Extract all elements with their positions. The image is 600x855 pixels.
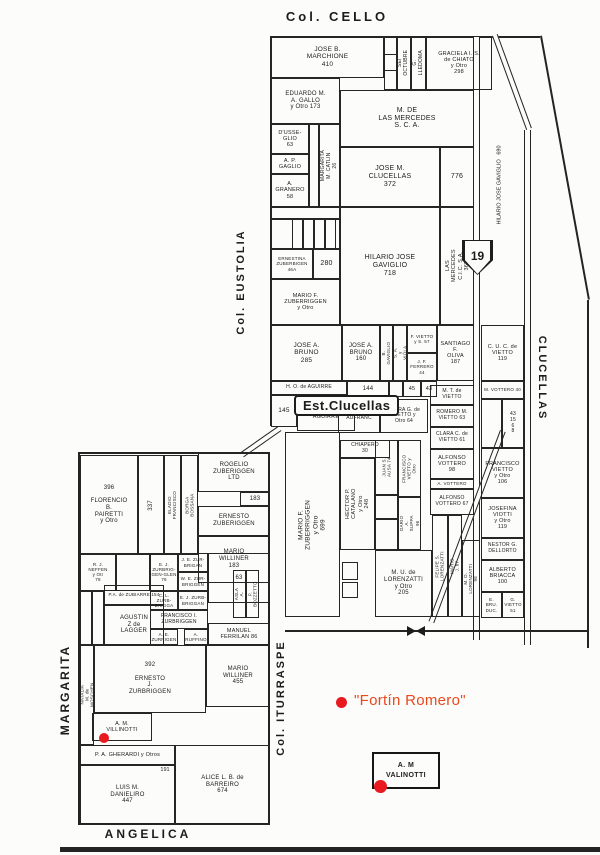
parcel-juan-ausa: JUAN S. AUSA 74 bbox=[375, 440, 398, 495]
bottom-map-edge bbox=[60, 847, 600, 852]
parcel-bottom-strip bbox=[271, 207, 340, 219]
parcel-marchione: JOSE B. MARCHIONE 410 bbox=[271, 36, 384, 78]
right-boundary-diagonal bbox=[540, 36, 589, 300]
parcel-lledoma: G. LLEDOMA bbox=[411, 36, 426, 90]
parcel-lledoma-text: G. LLEDOMA bbox=[413, 50, 425, 75]
parcel-mario-f-zuberriggen: MARIO F. ZUBERRIGGEN y Otro bbox=[271, 279, 340, 325]
south-boundary-line bbox=[285, 630, 588, 632]
strip-seg-line-1 bbox=[384, 54, 397, 55]
colony-label-clucellas: CLUCELLAS bbox=[532, 332, 548, 424]
parcel-we-zurbriggen: W. E. ZUR- BRIGGEN bbox=[178, 572, 208, 591]
parcel-b-gaviglio: B. GAVIGLIO bbox=[380, 325, 393, 381]
parcel-45: 45 bbox=[403, 381, 421, 397]
parcel-luis-danieliro: LUIS M. DANIELIRO 447 bbox=[80, 765, 175, 825]
parcel-ernesto-zuberiggen: ERNESTO ZUBERIGGEN bbox=[198, 506, 270, 536]
parcel-catalano: HECTOR P. CATALANO y Otro 248 bbox=[340, 458, 375, 550]
parcel-clara-c-vietto: CLARA C. de VIETTO 61 bbox=[430, 427, 474, 449]
parcel-zuberriggen-699: MARIO F. ZUBERRIGGEN y Otro 699 bbox=[285, 432, 340, 617]
micro-strip-4 bbox=[325, 219, 336, 249]
parcel-ernesto-392: 392 ERNESTO J. ZURBRIGGEN bbox=[94, 645, 206, 713]
strip-seg-line-2 bbox=[384, 70, 397, 71]
parcel-francisco-zurbriggen: FRANCISCO I. ZURBRIGGEN bbox=[150, 610, 208, 629]
parcel-alfonso-vottero-67: ALFONSO VOTTERO 67 bbox=[430, 489, 474, 515]
parcel-small-1 bbox=[342, 562, 358, 580]
parcel-oliva: SANTIAGO F. OLIVA 187 bbox=[437, 325, 474, 381]
parcel-bruno-160: JOSE A. BRUNO 160 bbox=[342, 325, 380, 381]
parcel-sa-viola: S. A. y VIOLA bbox=[393, 325, 407, 381]
parcel-lorenzatti-96-text: M. D. LORENZATTI 96 bbox=[463, 564, 479, 594]
parcel-thin-strip bbox=[309, 124, 319, 207]
parcel-usseglio: D'USSE- GLIO 63 bbox=[271, 124, 309, 154]
parcel-catalano-text: HECTOR P. CATALANO y Otro 248 bbox=[345, 488, 370, 521]
east-road bbox=[524, 130, 531, 645]
parcel-lorenzatti-96: M. D. LORENZATTI 96 bbox=[462, 540, 480, 617]
crossing-marker-icon bbox=[407, 626, 416, 636]
parcel-west-strip-2 bbox=[92, 591, 104, 645]
parcel-alberto-briacca: ALBERTO BRIACCA 100 bbox=[481, 560, 524, 592]
parcel-catlin: MARGARITA M. CATLIN 26 bbox=[319, 124, 340, 207]
parcel-337: 337 bbox=[138, 455, 164, 555]
parcel-zuberriggen-699-text: MARIO F. ZUBERRIGGEN y Otro 699 bbox=[298, 498, 328, 551]
parcel-a-vottero-strip: A. VOTTERO bbox=[430, 479, 474, 489]
parcel-mid-strip bbox=[375, 519, 398, 550]
parcel-gherardi: P. A. GHERARDI y Otros bbox=[80, 745, 175, 765]
parcel-dario-suppa-text: DARIO A. SUPPA 96 bbox=[399, 513, 420, 534]
label-hilario-gaviglio-690: HILARIO JOSE GAVIGLIO 690 bbox=[488, 120, 512, 250]
parcel-granero: A. GRANERO 58 bbox=[271, 174, 309, 207]
parcel-bozzetto: P. BOZZETTO bbox=[246, 570, 259, 618]
parcel-borga-bossana-text: BORGA BOSSANA bbox=[184, 493, 194, 516]
parcel-las-mercedes-sca: M. DE LAS MERCEDES S. C. A. bbox=[340, 90, 474, 147]
parcel-ferrero-44: J. F. FERRERO 44 bbox=[407, 353, 437, 381]
parcel-alfonso-vottero-98: ALFONSO VOTTERO 98 bbox=[430, 449, 474, 479]
parcel-gallo: EDUARDO M. A. GALLO y Otro 173 bbox=[271, 78, 340, 124]
parcel-zurbriggen-glen: E. J. ZURBRIG- GEN-GLEN 76 bbox=[150, 553, 178, 591]
parcel-east-cells: 43 15 6 8 bbox=[502, 399, 524, 448]
micro-strip-2 bbox=[303, 219, 314, 249]
parcel-lorenzatti-205: M. U. de LORENZATTI y Otro 205 bbox=[375, 550, 432, 617]
parcel-cuc-vietto: C. U. C. de VIETTO 119 bbox=[481, 325, 524, 381]
parcel-sei-octubre-text: SEI OCTUBRE bbox=[398, 50, 410, 76]
parcel-vottero-40: M. VOTTERO 40 bbox=[481, 381, 524, 399]
parcel-east-strip bbox=[481, 399, 502, 448]
parcel-280: 280 bbox=[313, 249, 340, 279]
parcel-a-ruffino: A. RUFFINO bbox=[184, 629, 208, 645]
parcel-asla-text: ASLA A. bbox=[234, 588, 244, 600]
parcel-183-tag: 183 bbox=[240, 492, 270, 506]
parcel-francisco-vietto-strip-text: FRANCISCO VIETTO y Otro bbox=[402, 454, 418, 482]
colony-label-eustolia: Col. EUSTOLIA bbox=[235, 227, 251, 337]
parcel-asla: ASLA A. bbox=[233, 570, 246, 618]
parcel-ej-zurbbriggan: E. J. ZURB- BRIGGAN bbox=[178, 591, 208, 610]
parcel-francisco-vietto-106: FRANCISCO VIETTO y Otro 106 bbox=[481, 448, 524, 498]
parcel-manuel-ferrilan: MANUEL FERRILAN 86 bbox=[208, 623, 270, 645]
parcel-rogelio-zuberiggen: ROGELIO ZUBERIGGEN LTD bbox=[198, 452, 270, 492]
colony-label-angelica: ANGELICA bbox=[93, 827, 203, 841]
parcel-felipe-lorenzatti-text: FELIPE S. LORENZATTI bbox=[435, 551, 445, 581]
parcel-chiato: GRACIELA I. S. de CHIATO y Otro 298 bbox=[426, 36, 492, 90]
parcel-mario-williner-455: MARIO WILLINER 455 bbox=[206, 645, 270, 707]
micro-strip-3 bbox=[314, 219, 325, 249]
parcel-strip-segments bbox=[384, 36, 397, 90]
parcel-337-text: 337 bbox=[148, 500, 155, 511]
station-label-est-clucellas: Est.Clucellas bbox=[294, 395, 399, 416]
parcel-mid-cells bbox=[375, 495, 398, 519]
parcel-b-gaviglio-text: B. GAVIGLIO bbox=[381, 342, 391, 365]
parcel-bozzetto-text: P. BOZZETTO bbox=[247, 581, 257, 607]
parcel-eladio-francisco: ELADIO FRANCISCO bbox=[164, 455, 181, 555]
parcel-sei-octubre: SEI OCTUBRE bbox=[397, 36, 411, 90]
parcel-dario-suppa: DARIO A. SUPPA 96 bbox=[398, 497, 421, 550]
parcel-small-2 bbox=[342, 582, 358, 598]
valinotti-red-dot bbox=[374, 780, 387, 793]
parcel-catlin-text: MARGARITA M. CATLIN 26 bbox=[321, 150, 338, 181]
parcel-eladio-francisco-text: ELADIO FRANCISCO bbox=[167, 491, 177, 519]
parcel-776: 776 bbox=[440, 147, 474, 207]
parcel-ae-zurrigen: A. E. ZURRIGEN bbox=[150, 629, 178, 645]
parcel-ho-aguirre: H. O. de AGUIRRE bbox=[271, 381, 347, 395]
colony-label-margarita: MARGARITA bbox=[58, 635, 74, 745]
parcel-nestor-dellorto: NESTOR G. DELLORTO bbox=[481, 538, 524, 560]
colony-label-cello: Col. CELLO bbox=[271, 9, 403, 24]
villinotti-red-dot bbox=[99, 733, 109, 743]
cadastral-map-clucellas: Col. CELLO Col. EUSTOLIA CLUCELLAS MARGA… bbox=[0, 0, 600, 855]
parcel-felipe-lorenzatti: FELIPE S. LORENZATTI bbox=[432, 515, 448, 617]
label-hilario-gaviglio-690-text: HILARIO JOSE GAVIGLIO 690 bbox=[497, 145, 503, 224]
parcel-josefina-viotti: JOSEFINA VIOTTI y Otro 119 bbox=[481, 498, 524, 538]
parcel-west-strip-1 bbox=[80, 591, 92, 645]
parcel-gaviglio-718: HILARIO JOSE GAVIGLIO 718 bbox=[340, 207, 440, 325]
micro-strip-1 bbox=[292, 219, 303, 249]
parcel-jose-clucellas: JOSE M. CLUCELLAS 372 bbox=[340, 147, 440, 207]
parcel-florencio-pairetti: 396 FLORENCIO B. PAIRETTI y Otro bbox=[80, 455, 138, 555]
parcel-juan-ausa-text: JUAN S. AUSA 74 bbox=[381, 457, 391, 478]
parcel-mario-j-87: MARIO J. 87 bbox=[448, 515, 462, 617]
right-boundary bbox=[587, 300, 589, 648]
parcel-bruno-285: JOSE A. BRUNO 285 bbox=[271, 325, 342, 381]
parcel-f-vietto-57: F. VIETTO y S. 57 bbox=[407, 325, 437, 353]
east-road-slant bbox=[492, 34, 532, 130]
parcel-gaglio: A. P. GAGLIO bbox=[271, 154, 309, 174]
parcel-borga-bossana: BORGA BOSSANA bbox=[181, 455, 198, 555]
parcel-cl-zurbbrigga: C. L. ZURB- BRIGGA bbox=[150, 591, 178, 610]
parcel-francisco-vietto-strip: FRANCISCO VIETTO y Otro bbox=[398, 440, 421, 497]
parcel-mario-j-87-text: MARIO J. 87 bbox=[450, 558, 460, 574]
fortin-romero-dot bbox=[336, 697, 347, 708]
parcel-natalia-moschen-text: NATALIA M. de MOSCHEN bbox=[80, 683, 94, 707]
parcel-alice-barreiro: ALICE L. B. de BARREIRO 674 bbox=[175, 745, 270, 825]
parcel-je-zurbrigan: J. E. ZUR- BRIGAN bbox=[178, 553, 208, 572]
parcel-g-vietto-51: G. VIETTO 51 bbox=[502, 592, 524, 618]
parcel-mt-vietto: M. T. de VIETTO bbox=[430, 385, 474, 405]
crossing-marker-icon bbox=[416, 626, 425, 636]
parcel-ernestina: ERNESTINA ZUBERBIGEN 46A bbox=[271, 249, 313, 279]
parcel-romero-vietto: ROMERO M. VIETTO 63 bbox=[430, 405, 474, 427]
parcel-e-bru-duc: E. BRU. DUC. bbox=[481, 592, 502, 618]
poi-label-fortin-romero: "Fortín Romero" bbox=[354, 692, 466, 709]
parcel-sa-viola-text: S. A. y VIOLA bbox=[393, 346, 407, 360]
colony-label-iturraspe: Col. ITURRASPE bbox=[275, 628, 291, 768]
